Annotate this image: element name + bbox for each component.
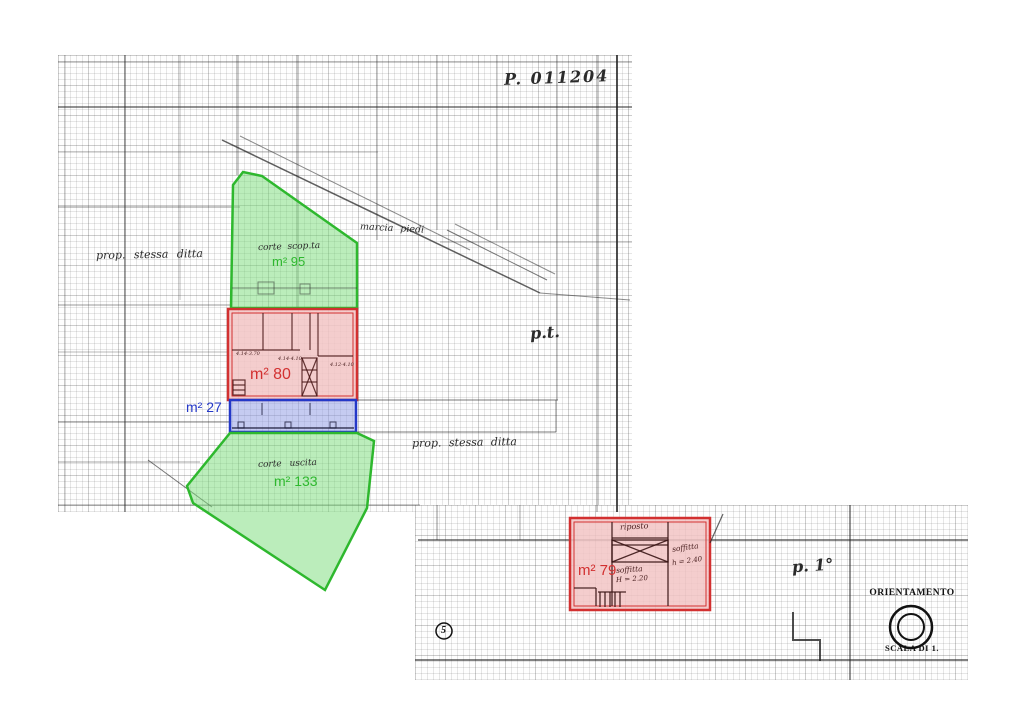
dim-mid-room: 4.14·4.10 bbox=[278, 357, 302, 362]
area-label-building-first: m² 79 bbox=[578, 563, 616, 578]
orientation-title: ORIENTAMENTO bbox=[862, 589, 962, 599]
area-label-building-ground: m² 80 bbox=[250, 367, 291, 383]
survey-grid-lines bbox=[58, 55, 1024, 680]
portico-overlay bbox=[230, 400, 356, 432]
floor-first-label: p. 1° bbox=[791, 557, 833, 576]
neighbor-label-bottom: prop. stessa ditta bbox=[412, 436, 517, 449]
boundary-step-line bbox=[793, 612, 820, 661]
plan-drawing bbox=[0, 0, 1024, 724]
scale-label: SCALA DI 1. bbox=[862, 644, 962, 653]
area-label-portico: m² 27 bbox=[186, 400, 222, 414]
courtyard-bottom-overlay bbox=[187, 433, 374, 590]
area-label-courtyard-top: m² 95 bbox=[272, 255, 305, 268]
room-top-label: riposto bbox=[620, 522, 649, 531]
dim-right-room: 4.12·4.10 bbox=[330, 363, 354, 368]
protocol-number: P. 011204 bbox=[504, 68, 610, 88]
cadastral-plan-scan: P. 011204 prop. stessa ditta marcia pied… bbox=[0, 0, 1024, 724]
room-mid-label: soffitta bbox=[616, 565, 643, 574]
building-first-overlay bbox=[570, 514, 820, 661]
dim-left-room: 4.14·3.70 bbox=[236, 352, 260, 357]
compass-icon bbox=[890, 606, 932, 648]
sheet-number: 5 bbox=[441, 626, 446, 636]
floor-ground-label: p.t. bbox=[529, 324, 560, 342]
area-label-courtyard-bottom: m² 133 bbox=[274, 474, 318, 488]
neighbor-label-left: prop. stessa ditta bbox=[96, 248, 203, 261]
